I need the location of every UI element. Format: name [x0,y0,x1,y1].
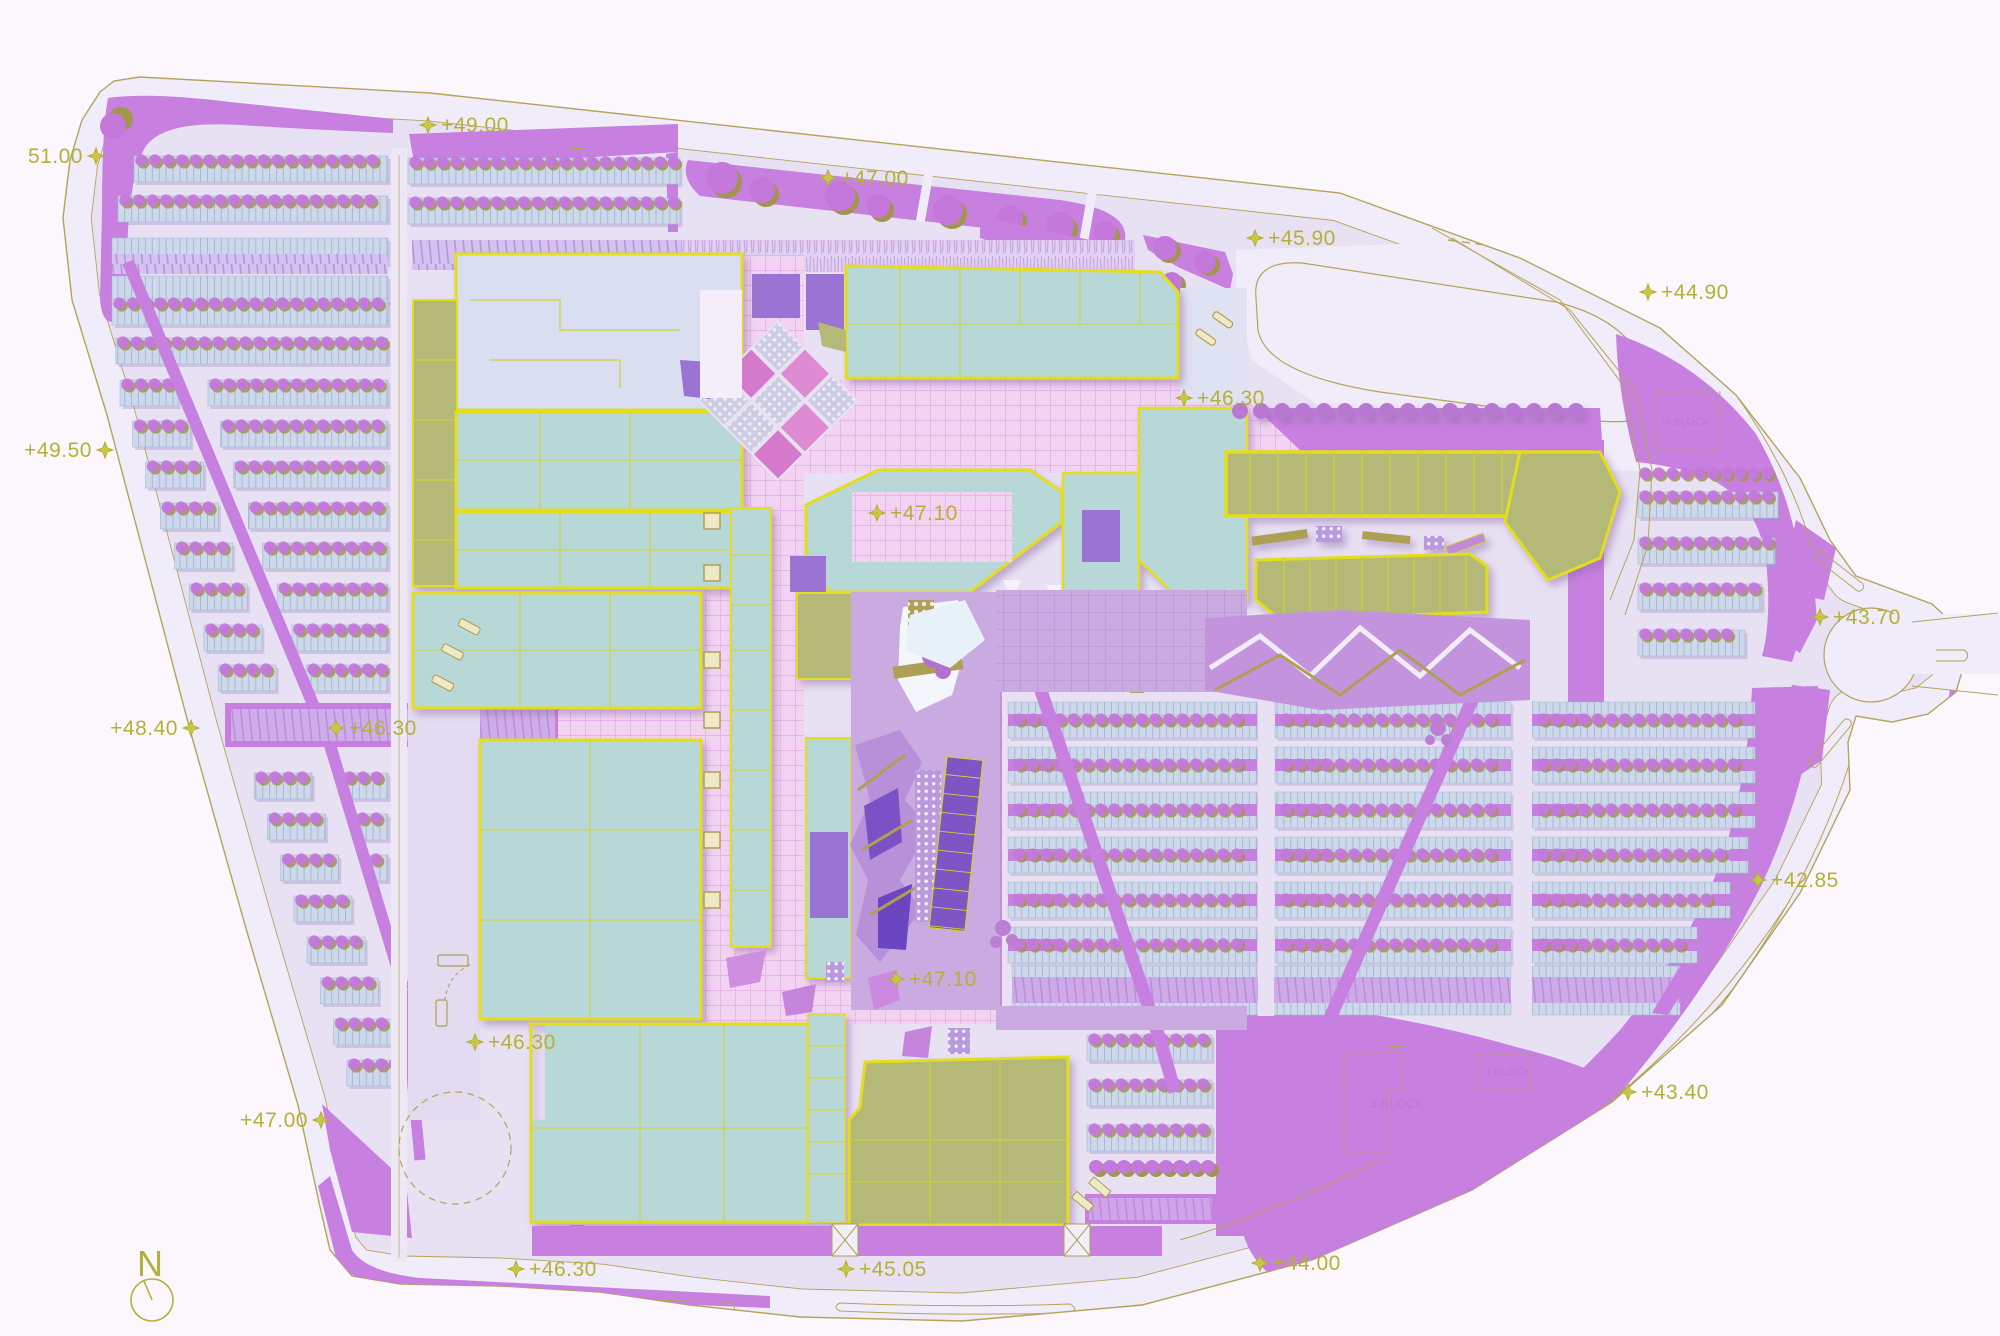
svg-text:+43.70: +43.70 [1833,606,1901,629]
svg-text:+44.90: +44.90 [1661,281,1729,304]
svg-text:+43.40: +43.40 [1641,1081,1709,1104]
svg-text:+44.00: +44.00 [1273,1252,1341,1275]
svg-text:+46.30: +46.30 [488,1031,556,1054]
svg-text:+48.40: +48.40 [110,717,178,740]
svg-text:+49.50: +49.50 [24,439,92,462]
svg-text:+46.30: +46.30 [1197,387,1265,410]
svg-text:H-BLOCK: H-BLOCK [1662,417,1710,428]
svg-text:+49.00: +49.00 [441,114,509,137]
svg-text:+47.00: +47.00 [841,167,909,190]
svg-text:I-BLOCK: I-BLOCK [1487,1067,1531,1078]
svg-text:+47.00: +47.00 [240,1109,308,1132]
svg-text:N: N [137,1243,164,1284]
svg-text:51.00: 51.00 [28,145,83,168]
svg-text:+46.30: +46.30 [349,717,417,740]
svg-text:+45.90: +45.90 [1268,227,1336,250]
svg-text:+46.30: +46.30 [529,1258,597,1281]
svg-text:+47.10: +47.10 [909,968,977,991]
svg-text:+47.10: +47.10 [890,502,958,525]
svg-text:+45.05: +45.05 [859,1258,927,1281]
svg-text:+42.85: +42.85 [1771,869,1839,892]
svg-text:J-BLOCK: J-BLOCK [1370,1097,1424,1111]
